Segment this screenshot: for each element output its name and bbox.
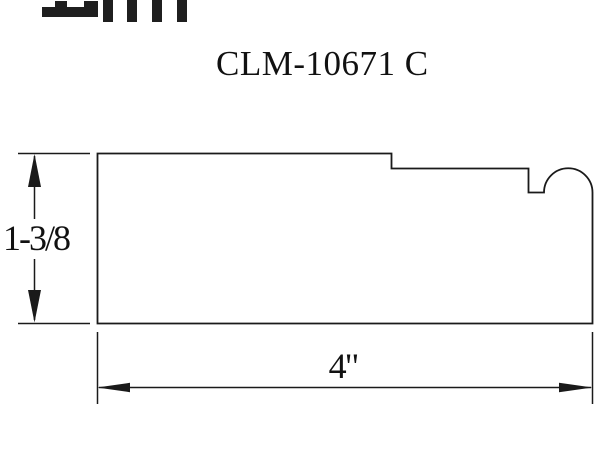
artifact-mark (84, 1, 98, 8)
artifact-mark (152, 0, 162, 22)
drawing-title: CLM-10671 C (216, 46, 429, 81)
arrow-right-icon (559, 383, 593, 392)
artifact-mark (127, 0, 137, 22)
width-dimension-label: 4" (303, 347, 383, 387)
artifact-mark (55, 1, 67, 8)
artifact-mark (42, 7, 98, 17)
arrow-up-icon (28, 154, 41, 187)
arrow-left-icon (97, 383, 130, 392)
height-dimension-label: 1-3/8 (0, 219, 74, 259)
artifact-mark (103, 0, 113, 22)
artifact-mark (177, 0, 187, 22)
scan-artifact-marks (42, 0, 187, 22)
molding-profile-outline (98, 154, 593, 324)
drawing-sheet: CLM-10671 C 1-3/8 4" (0, 0, 600, 450)
arrow-down-icon (28, 290, 41, 323)
